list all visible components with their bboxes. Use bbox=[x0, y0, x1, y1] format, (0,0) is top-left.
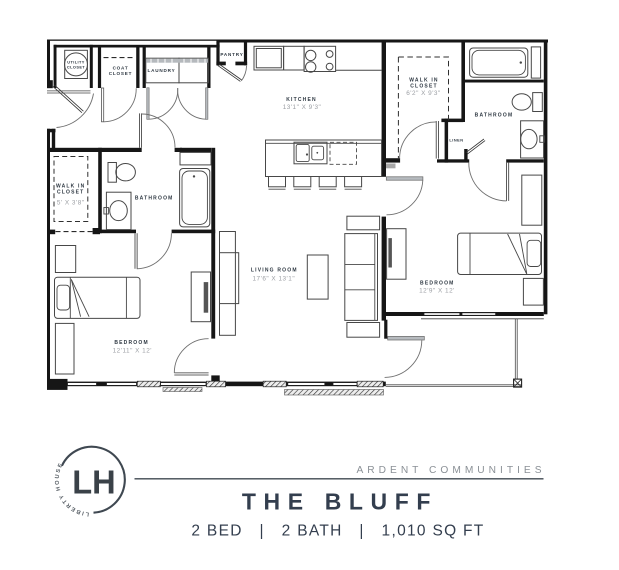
svg-text:KITCHEN: KITCHEN bbox=[286, 97, 317, 103]
svg-text:PANTRY: PANTRY bbox=[220, 52, 243, 57]
svg-text:ARDENT COMMUNITIES: ARDENT COMMUNITIES bbox=[357, 465, 546, 476]
svg-text:13'1" X 9'3": 13'1" X 9'3" bbox=[283, 104, 322, 111]
svg-text:LH: LH bbox=[72, 465, 115, 502]
svg-text:THE BLUFF: THE BLUFF bbox=[242, 489, 438, 515]
svg-text:12'9" X 12': 12'9" X 12' bbox=[419, 288, 455, 295]
svg-text:CLOSET: CLOSET bbox=[57, 190, 84, 196]
svg-text:BATHROOM: BATHROOM bbox=[475, 113, 514, 119]
svg-text:5' X 3'8": 5' X 3'8" bbox=[57, 200, 85, 207]
svg-text:COAT: COAT bbox=[113, 65, 129, 70]
svg-text:LIVING ROOM: LIVING ROOM bbox=[251, 268, 298, 274]
svg-text:CLOSET: CLOSET bbox=[109, 71, 132, 76]
svg-text:17'6" X 13'1": 17'6" X 13'1" bbox=[252, 276, 295, 283]
svg-text:LAUNDRY: LAUNDRY bbox=[148, 68, 176, 73]
svg-text:6'2" X 9'3": 6'2" X 9'3" bbox=[406, 90, 441, 97]
svg-text:CLOSET: CLOSET bbox=[67, 64, 85, 69]
svg-text:12'11" X 12': 12'11" X 12' bbox=[113, 348, 152, 355]
svg-text:2 BED | 2 BATH | 1,010: 2 BED | 2 BATH | 1,010 SQ FT bbox=[191, 523, 484, 540]
svg-text:BEDROOM: BEDROOM bbox=[420, 281, 455, 287]
svg-text:BEDROOM: BEDROOM bbox=[114, 340, 149, 346]
svg-text:CLOSET: CLOSET bbox=[410, 84, 437, 90]
svg-text:LINEN: LINEN bbox=[449, 138, 463, 143]
svg-text:BATHROOM: BATHROOM bbox=[135, 196, 174, 202]
